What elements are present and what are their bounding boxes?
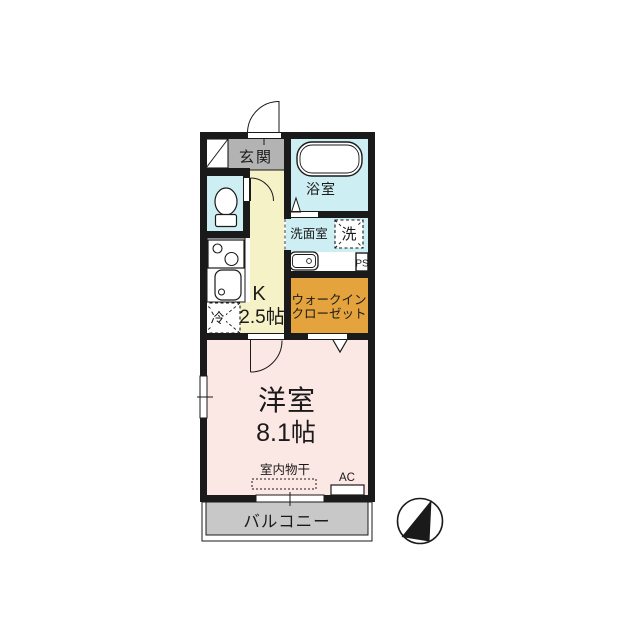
balcony-label: バルコニー [243, 513, 330, 531]
toilet-icon [215, 188, 237, 215]
kitchen-faucet-icon [219, 289, 225, 295]
stove-burner-large-icon [225, 253, 238, 266]
pipe-space-label: PS [355, 259, 369, 270]
bedroom-size-label: 8.1帖 [256, 419, 316, 447]
entrance-door-arc [248, 102, 280, 134]
bedroom-label: 洋室 [258, 385, 316, 416]
toilet-tank-icon [216, 215, 237, 227]
north-arrow-icon [398, 499, 443, 544]
vanity-drain-icon [307, 259, 312, 264]
floor-plan: 玄関 浴室 洗面室 洗 PS K 2.5帖 冷 ウォークイン クローゼット 洋室… [0, 0, 640, 640]
ac-unit-icon [331, 485, 364, 495]
kitchen-size-label: 2.5帖 [239, 306, 284, 328]
fridge-label: 冷 [211, 310, 225, 326]
kitchen-sink-icon [215, 270, 241, 300]
stove-icon [208, 240, 244, 268]
kitchen-label: K [252, 283, 266, 305]
washer-label: 洗 [341, 226, 356, 243]
floor-plan-canvas: 玄関 浴室 洗面室 洗 PS K 2.5帖 冷 ウォークイン クローゼット 洋室… [0, 0, 640, 640]
vanity-sink-inner-icon [293, 255, 316, 268]
indoor-drying-label: 室内物干 [260, 462, 310, 477]
bathroom-label: 浴室 [306, 181, 336, 197]
stove-burner-small-icon [213, 244, 222, 253]
bathtub-inner-icon [300, 145, 359, 173]
closet-label-line2: クローゼット [291, 307, 366, 321]
closet-label-line1: ウォークイン [291, 293, 366, 307]
entrance-label: 玄関 [239, 149, 273, 166]
washroom-label: 洗面室 [290, 226, 328, 241]
ac-label: AC [339, 472, 355, 484]
